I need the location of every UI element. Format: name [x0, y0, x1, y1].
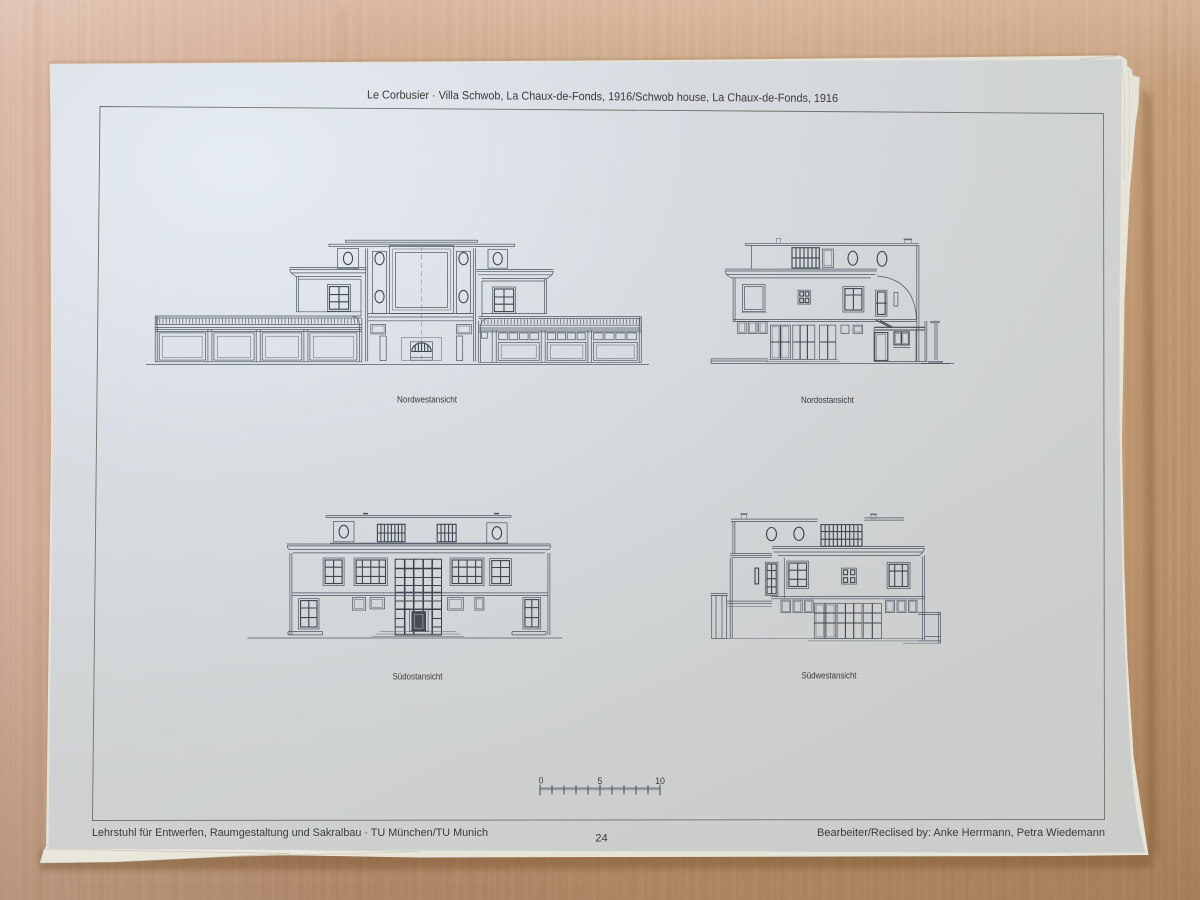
svg-text:5: 5 [598, 776, 603, 786]
svg-text:Bearbeiter/Reclised by: Anke H: Bearbeiter/Reclised by: Anke Herrmann, P… [817, 827, 1105, 839]
svg-text:10: 10 [655, 776, 665, 786]
svg-text:24: 24 [595, 833, 607, 845]
svg-text:Nordostansicht: Nordostansicht [801, 395, 854, 405]
svg-text:Lehrstuhl für Entwerfen, Raumg: Lehrstuhl für Entwerfen, Raumgestaltung … [92, 827, 488, 839]
svg-text:Südwestansicht: Südwestansicht [802, 671, 857, 681]
svg-text:Nordwestansicht: Nordwestansicht [397, 395, 457, 405]
svg-text:0: 0 [539, 776, 544, 786]
svg-text:Südostansicht: Südostansicht [393, 672, 443, 682]
